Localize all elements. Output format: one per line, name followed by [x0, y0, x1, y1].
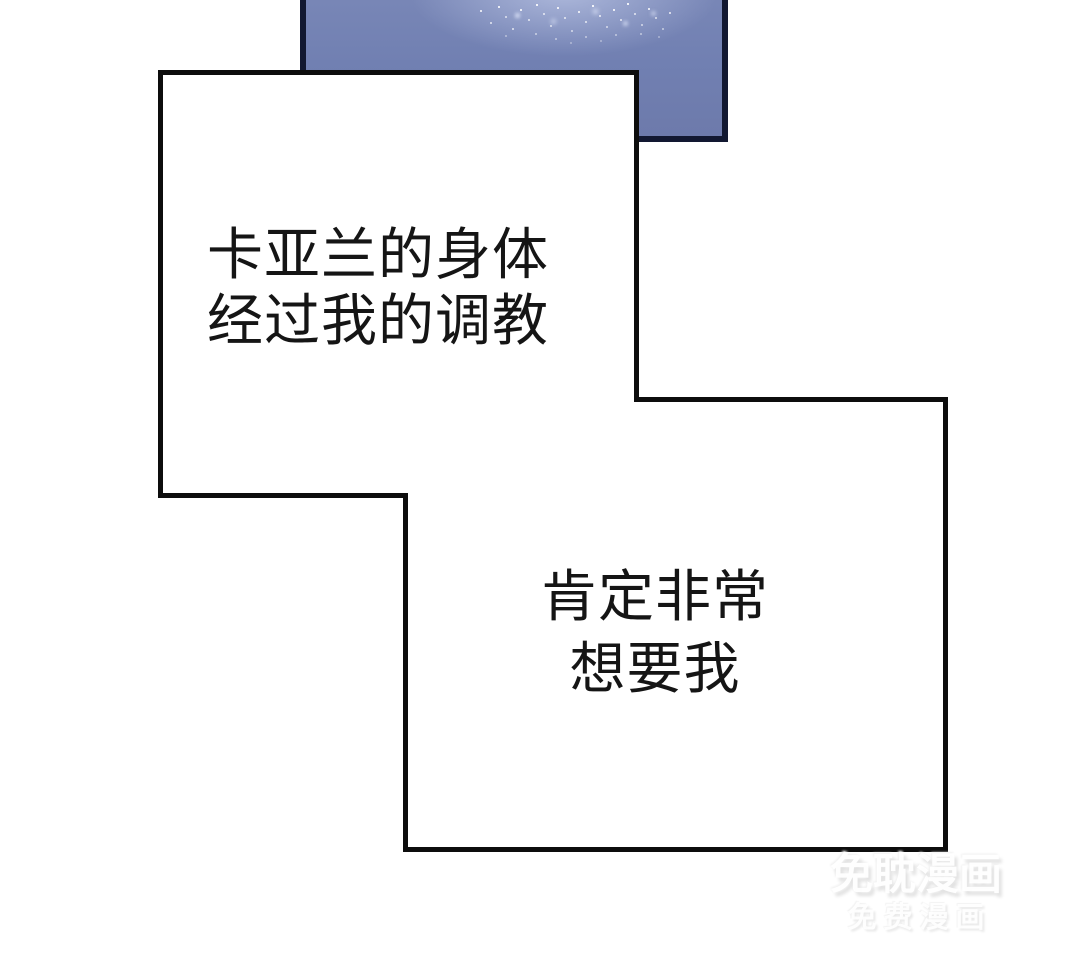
- comic-page: 卡亚兰的身体 经过我的调教 肯定非常 想要我 免耽漫画 免费漫画: [0, 0, 1080, 979]
- speech-text-2: 肯定非常 想要我: [405, 561, 905, 705]
- speech-text-1-line-1: 卡亚兰的身体: [160, 222, 596, 288]
- speech-text-1: 卡亚兰的身体 经过我的调教: [160, 222, 596, 354]
- speech-text-2-line-2: 想要我: [405, 633, 905, 705]
- speech-text-1-line-2: 经过我的调教: [160, 288, 596, 354]
- speech-bubble-outline: [161, 73, 946, 850]
- speech-bubble-shape: [0, 0, 1080, 979]
- speech-text-2-line-1: 肯定非常: [405, 561, 905, 633]
